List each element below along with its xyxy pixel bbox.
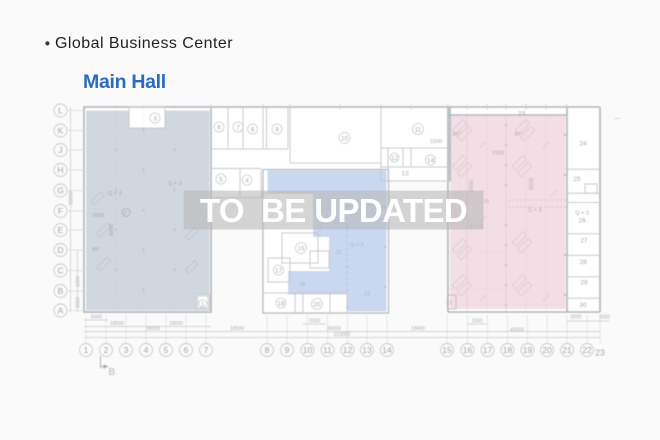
- svg-text:14: 14: [382, 345, 392, 355]
- svg-text:Q + 3: Q + 3: [350, 243, 364, 249]
- svg-text:1: 1: [84, 345, 89, 355]
- svg-text:45°: 45°: [92, 247, 100, 253]
- svg-text:32: 32: [446, 301, 452, 307]
- svg-text:6000: 6000: [76, 297, 82, 308]
- svg-text:E: E: [58, 225, 64, 235]
- svg-text:B: B: [109, 367, 116, 378]
- svg-text:8000: 8000: [109, 224, 115, 236]
- svg-text:L: L: [58, 106, 63, 116]
- svg-text:19: 19: [523, 345, 533, 355]
- svg-text:18000: 18000: [110, 321, 124, 327]
- svg-text:15: 15: [442, 345, 452, 355]
- svg-text:K: K: [58, 126, 64, 136]
- svg-text:26: 26: [578, 218, 586, 225]
- svg-text:22: 22: [582, 345, 592, 355]
- svg-text:1000: 1000: [471, 319, 482, 325]
- svg-text:18000: 18000: [169, 321, 183, 327]
- svg-text:6: 6: [184, 345, 189, 355]
- svg-text:18: 18: [503, 345, 513, 355]
- svg-text:Main Hall: Main Hall: [83, 71, 166, 93]
- svg-text:17: 17: [483, 345, 493, 355]
- svg-text:14: 14: [427, 158, 435, 165]
- svg-text:Q + 3: Q + 3: [528, 208, 542, 214]
- svg-text:6000: 6000: [529, 178, 535, 190]
- svg-text:45000: 45000: [510, 328, 524, 334]
- svg-text:10: 10: [303, 345, 313, 355]
- svg-text:9: 9: [275, 127, 279, 134]
- svg-text:18400: 18400: [411, 326, 425, 332]
- svg-text:F: F: [58, 206, 63, 216]
- svg-text:6: 6: [217, 125, 221, 132]
- svg-text:18: 18: [277, 301, 285, 308]
- svg-text:21: 21: [562, 345, 572, 355]
- svg-text:29: 29: [580, 280, 588, 287]
- svg-text:23: 23: [595, 348, 605, 358]
- svg-text:8: 8: [265, 345, 270, 355]
- svg-text:30: 30: [579, 302, 587, 309]
- svg-text:J: J: [58, 145, 62, 155]
- svg-text:TO BE UPDATED: TO BE UPDATED: [200, 192, 467, 229]
- svg-text:22: 22: [364, 292, 370, 298]
- svg-text:16: 16: [463, 345, 473, 355]
- svg-text:Q + 3: Q + 3: [108, 191, 122, 197]
- svg-text:11: 11: [415, 127, 422, 134]
- svg-text:8: 8: [251, 127, 255, 134]
- svg-text:4: 4: [245, 178, 249, 185]
- svg-text:1900: 1900: [492, 151, 504, 157]
- svg-text:13: 13: [362, 345, 372, 355]
- svg-text:D: D: [57, 245, 63, 255]
- svg-text:24: 24: [579, 140, 587, 147]
- svg-text:10: 10: [341, 136, 349, 143]
- svg-text:4: 4: [144, 345, 149, 355]
- svg-text:15: 15: [297, 246, 305, 253]
- svg-text:153000: 153000: [334, 332, 351, 338]
- svg-text:6000: 6000: [76, 276, 82, 287]
- svg-text:3: 3: [153, 116, 157, 123]
- svg-text:C: C: [57, 266, 63, 276]
- svg-text:2000: 2000: [309, 319, 320, 325]
- svg-text:Q + 3: Q + 3: [575, 211, 589, 217]
- svg-text:2: 2: [104, 345, 109, 355]
- svg-text:H: H: [57, 165, 63, 175]
- svg-text:23: 23: [518, 111, 526, 118]
- svg-text:A: A: [58, 306, 64, 316]
- svg-text:G: G: [57, 186, 64, 196]
- svg-text:18000: 18000: [230, 326, 244, 332]
- svg-text:36000: 36000: [146, 326, 160, 332]
- svg-text:1000: 1000: [430, 139, 442, 145]
- svg-text:7: 7: [236, 125, 240, 132]
- svg-text:Q + 3: Q + 3: [168, 181, 182, 187]
- svg-text:45°: 45°: [514, 132, 522, 138]
- svg-text:45°: 45°: [452, 132, 460, 138]
- svg-text:21: 21: [336, 250, 342, 256]
- svg-text:5: 5: [219, 177, 223, 184]
- svg-text:25: 25: [573, 176, 581, 183]
- svg-text:3: 3: [124, 345, 129, 355]
- svg-text:9: 9: [285, 345, 290, 355]
- svg-text:7: 7: [204, 345, 209, 355]
- svg-text:2600: 2600: [92, 213, 104, 219]
- svg-text:5: 5: [164, 345, 169, 355]
- svg-text:31: 31: [484, 199, 490, 205]
- svg-text:17: 17: [275, 268, 283, 275]
- svg-text:12: 12: [343, 345, 353, 355]
- svg-text:27: 27: [580, 237, 588, 244]
- svg-text:11: 11: [323, 345, 332, 355]
- svg-text:20: 20: [542, 345, 552, 355]
- svg-text:12: 12: [391, 155, 399, 162]
- svg-text:1: 1: [201, 301, 205, 308]
- svg-text:B: B: [58, 286, 64, 296]
- svg-text:3000: 3000: [599, 315, 610, 321]
- svg-text:6000: 6000: [469, 180, 475, 192]
- svg-text:6000: 6000: [91, 315, 102, 321]
- svg-text:Global Business Center: Global Business Center: [55, 35, 233, 52]
- svg-text:60000: 60000: [69, 191, 75, 205]
- svg-text:28: 28: [579, 259, 587, 266]
- svg-text:6000: 6000: [570, 315, 581, 321]
- svg-text:19: 19: [299, 282, 305, 288]
- svg-text:20: 20: [313, 302, 321, 309]
- svg-text:13: 13: [401, 171, 409, 178]
